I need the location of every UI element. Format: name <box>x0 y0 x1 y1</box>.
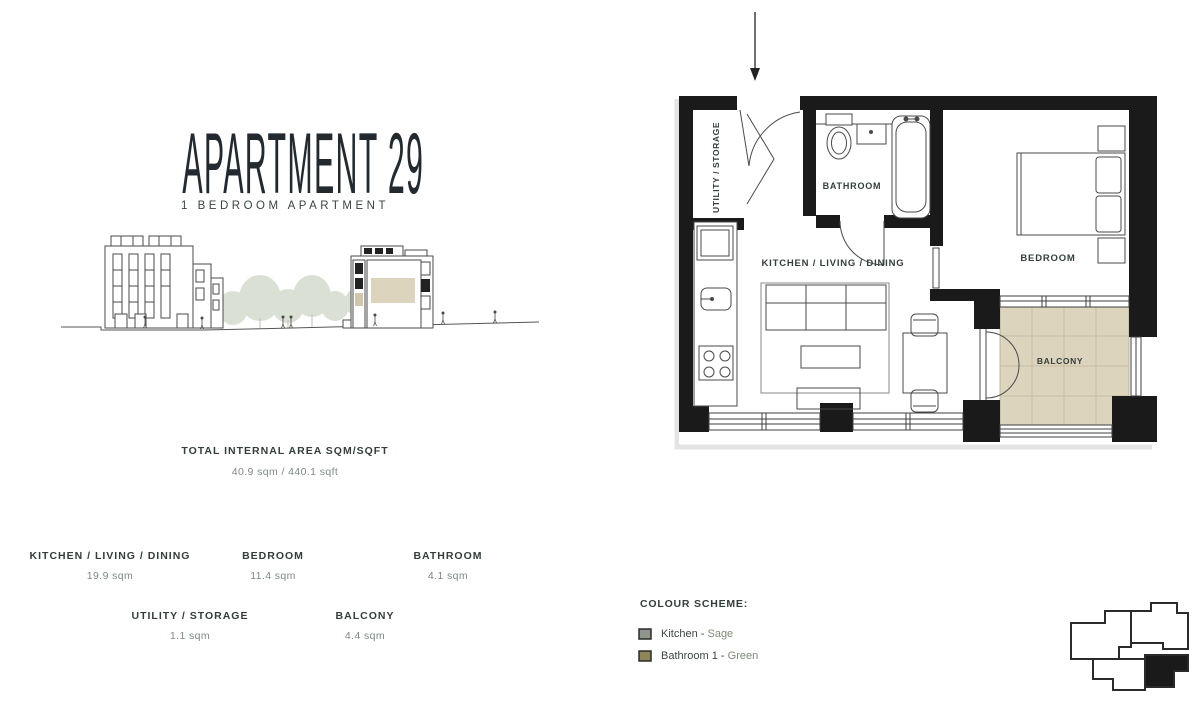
total-area-label: TOTAL INTERNAL AREA SQM/SQFT <box>120 445 450 457</box>
right-building <box>343 246 433 328</box>
room-name: BALCONY <box>285 610 445 622</box>
floorplan-page: APARTMENT 29 1 BEDROOM APARTMENT <box>0 0 1200 717</box>
fridge <box>697 226 733 260</box>
plan-label-bedroom: BEDROOM <box>1020 253 1075 264</box>
entrance-arrow-icon <box>750 12 760 81</box>
legend-item-bathroom: Bathroom 1 - Green <box>638 650 758 662</box>
colour-scheme-heading: COLOUR SCHEME: <box>640 598 748 610</box>
stat-utility-storage: UTILITY / STORAGE 1.1 sqm <box>110 610 270 642</box>
hob <box>699 346 733 380</box>
plan-label-utility: UTILITY / STORAGE <box>711 122 721 213</box>
plan-label-kitchen-living-dining: KITCHEN / LIVING / DINING <box>762 258 905 269</box>
apartment-location-marker <box>1145 655 1188 687</box>
room-area: 1.1 sqm <box>110 630 270 642</box>
trees-illustration <box>218 275 369 325</box>
floor-plan: UTILITY / STORAGE BATHROOM KITCHEN / LIV… <box>655 0 1175 465</box>
kitchen-counter <box>694 222 737 406</box>
balcony-railing-bottom <box>1000 425 1112 437</box>
room-name: BATHROOM <box>368 550 528 562</box>
room-area: 19.9 sqm <box>20 570 200 582</box>
room-area: 11.4 sqm <box>193 570 353 582</box>
bathtub <box>892 116 930 218</box>
stat-kitchen-living-dining: KITCHEN / LIVING / DINING 19.9 sqm <box>20 550 200 582</box>
bedroom-pocket-door <box>933 248 939 288</box>
page-title: APARTMENT 29 <box>120 112 450 166</box>
legend-room: Kitchen - <box>661 628 704 640</box>
stat-bedroom: BEDROOM 11.4 sqm <box>193 550 353 582</box>
room-name: BEDROOM <box>193 550 353 562</box>
legend-colour: Sage <box>707 628 733 640</box>
toilet <box>826 114 852 159</box>
building-elevation-sketch <box>55 226 545 341</box>
stat-balcony: BALCONY 4.4 sqm <box>285 610 445 642</box>
legend-colour: Green <box>728 650 759 662</box>
total-area-value: 40.9 sqm / 440.1 sqft <box>120 466 450 478</box>
room-area: 4.1 sqm <box>368 570 528 582</box>
building-footprint-keyplan <box>1057 597 1192 697</box>
room-name: KITCHEN / LIVING / DINING <box>20 550 200 562</box>
legend-room: Bathroom 1 - <box>661 650 725 662</box>
basin <box>857 124 886 144</box>
room-area: 4.4 sqm <box>285 630 445 642</box>
elevation-apartment-highlight <box>371 278 415 303</box>
bathroom-green-swatch-icon <box>638 650 652 662</box>
left-building <box>105 236 223 328</box>
legend-item-kitchen: Kitchen - Sage <box>638 628 733 640</box>
plan-label-bathroom: BATHROOM <box>823 181 882 191</box>
kitchen-sink <box>701 288 731 310</box>
apartment-title: APARTMENT 29 <box>182 112 424 214</box>
kitchen-sage-swatch-icon <box>638 628 652 640</box>
stat-bathroom: BATHROOM 4.1 sqm <box>368 550 528 582</box>
plan-label-balcony: BALCONY <box>1037 356 1083 366</box>
room-name: UTILITY / STORAGE <box>110 610 270 622</box>
apartment-subtitle: 1 BEDROOM APARTMENT <box>120 200 450 212</box>
